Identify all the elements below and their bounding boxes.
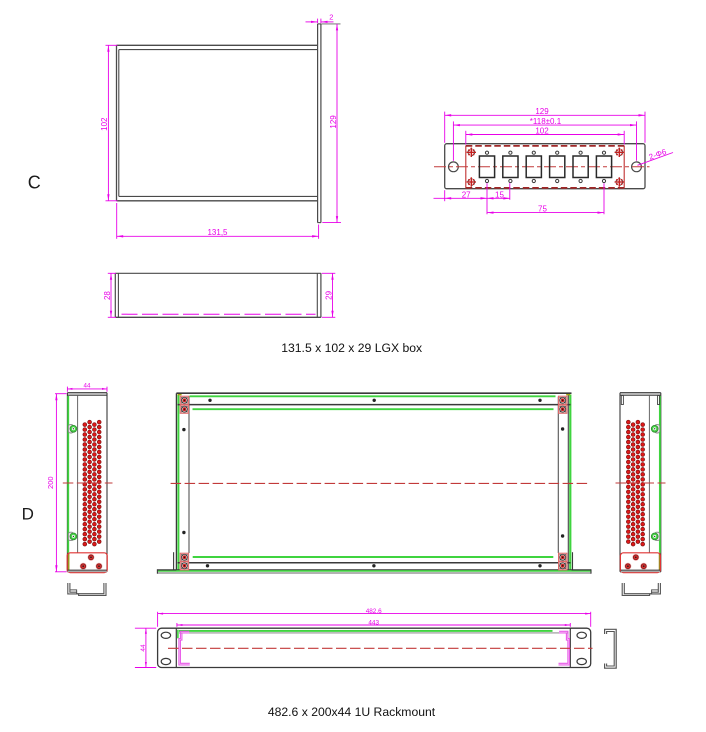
svg-text:15: 15	[495, 190, 504, 199]
svg-text:482.6: 482.6	[366, 608, 382, 615]
svg-text:129: 129	[329, 115, 338, 129]
svg-text:102: 102	[100, 117, 109, 131]
svg-text:443: 443	[368, 620, 379, 627]
svg-text:27: 27	[462, 190, 471, 199]
svg-text:129: 129	[535, 107, 549, 116]
svg-text:131,5: 131,5	[207, 228, 228, 237]
svg-text:C: C	[28, 172, 41, 192]
svg-text:131.5 x 102 x 29 LGX box: 131.5 x 102 x 29 LGX box	[281, 341, 422, 355]
svg-text:44: 44	[140, 644, 147, 652]
svg-text:29: 29	[325, 290, 334, 299]
svg-text:2: 2	[329, 12, 333, 21]
svg-text:*118±0.1: *118±0.1	[530, 117, 562, 126]
svg-text:44: 44	[84, 382, 91, 389]
svg-text:75: 75	[538, 205, 547, 214]
svg-text:200: 200	[46, 476, 55, 489]
svg-text:102: 102	[535, 126, 549, 135]
svg-text:D: D	[22, 504, 34, 523]
svg-text:482.6 x 200x44 1U Rackmount: 482.6 x 200x44 1U Rackmount	[268, 705, 436, 719]
svg-text:28: 28	[103, 291, 112, 300]
